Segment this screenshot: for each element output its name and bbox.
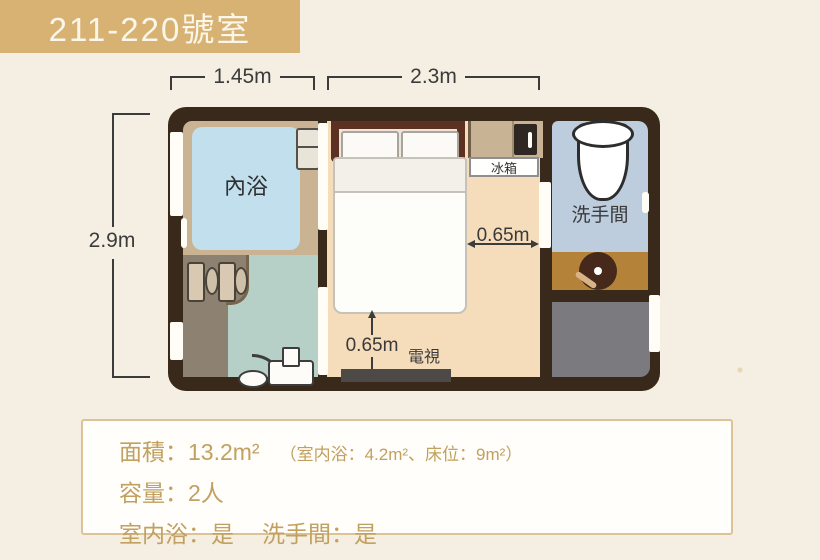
dimension-top-left: 1.45m — [170, 76, 315, 92]
door-opening — [649, 295, 660, 352]
arrow-line — [473, 243, 533, 245]
water-heater-icon — [296, 128, 320, 170]
area-detail: （室内浴：4.2m²、床位：9m²） — [280, 440, 523, 465]
sink-icon — [579, 252, 617, 290]
toilet-tank-icon — [572, 120, 634, 148]
dimension-line — [112, 259, 114, 376]
safe-box-icon — [514, 124, 537, 155]
room-range-header: 211-220號室 — [0, 0, 300, 53]
bed — [333, 157, 467, 314]
arrowhead-right-icon — [531, 240, 539, 248]
door-slider-icon — [181, 218, 187, 248]
washroom-window — [642, 192, 649, 213]
dimension-line — [112, 115, 114, 227]
fridge-label: 冰箱 — [469, 157, 539, 177]
dimension-tick — [112, 113, 150, 115]
dimension-tick — [170, 76, 172, 90]
dimension-line — [465, 76, 538, 78]
faucet-knob-icon — [234, 267, 248, 295]
door-opening — [318, 287, 328, 375]
shower-head-icon — [238, 370, 268, 388]
dimension-tick — [112, 376, 150, 378]
tv-icon — [341, 369, 451, 382]
dimension-line — [329, 76, 402, 78]
bath-stool-knob — [282, 347, 300, 367]
safe-slot — [528, 132, 532, 148]
door-opening — [318, 123, 328, 230]
horizontal-arrow — [467, 239, 539, 249]
dimension-tick — [538, 76, 540, 90]
dimension-line — [280, 76, 313, 78]
floor-plan: 內浴 冰箱 0.65m 0.65m 電視 洗手間 — [168, 107, 660, 391]
washroom-label: 洗手間 — [552, 200, 648, 227]
door-opening — [539, 182, 551, 248]
info-row-area: 面積：13.2m² （室内浴：4.2m²、床位：9m²） — [119, 433, 731, 467]
sink-drain — [594, 267, 602, 275]
entry-area-floor — [552, 302, 650, 377]
dimension-line — [172, 76, 205, 78]
dimension-top-middle: 2.3m — [327, 76, 540, 92]
dimension-label-width-bedroom: 2.3m — [402, 66, 465, 87]
gap-dimension-label-bottom: 0.65m — [338, 335, 406, 357]
bed-duvet-fold — [335, 159, 465, 193]
indoor-bath-value: 室内浴：是 — [119, 515, 234, 549]
info-row-capacity: 容量：2人 — [119, 474, 731, 508]
page-title: 211-220號室 — [49, 3, 252, 51]
bath-room-label: 內浴 — [192, 169, 300, 201]
dimension-tick — [327, 76, 329, 90]
dimension-label-width-bath: 1.45m — [205, 66, 279, 87]
room-info-box: 面積：13.2m² （室内浴：4.2m²、床位：9m²） 容量：2人 室内浴：是… — [81, 419, 733, 535]
door-opening — [170, 322, 183, 360]
area-value: 面積：13.2m² — [119, 433, 260, 467]
info-row-facilities: 室内浴：是 洗手間：是 — [119, 515, 731, 549]
washroom-value: 洗手間：是 — [262, 515, 377, 549]
window-opening — [170, 132, 183, 216]
dimension-label-height: 2.9m — [77, 229, 147, 253]
dimension-left: 2.9m — [112, 113, 150, 378]
faucet-knob-icon — [205, 267, 219, 295]
capacity-value: 容量：2人 — [119, 474, 224, 508]
faucet-icon — [187, 262, 205, 302]
tv-label: 電視 — [408, 343, 478, 367]
dimension-tick — [313, 76, 315, 90]
